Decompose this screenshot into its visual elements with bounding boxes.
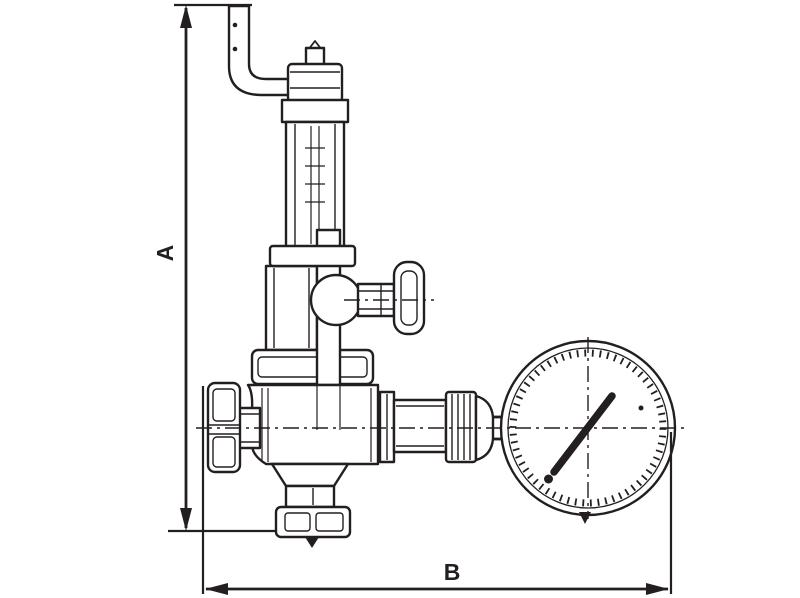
dim-a-arrow-top (180, 5, 192, 28)
bottom-cap-nut (276, 507, 350, 537)
outlet-assembly (380, 392, 504, 462)
pipe-mark-dot (233, 47, 238, 52)
hex-flange (252, 350, 373, 384)
inlet-elbow-pipe (229, 6, 292, 95)
bottom-funnel (272, 464, 348, 486)
gauge-bottom-pointer (579, 512, 591, 524)
side-handwheel-valve (358, 262, 424, 334)
dim-b-arrow-left (205, 583, 228, 595)
spring-bonnet-assembly (282, 41, 348, 248)
elbow-pipe-outline (229, 6, 292, 95)
outlet-spool (394, 400, 446, 452)
dial-dot (639, 406, 644, 411)
dim-b-arrow-right (646, 583, 669, 595)
lock-collar (270, 246, 355, 266)
dim-b-label: B (444, 559, 461, 585)
dim-a-label: A (152, 245, 178, 262)
drain-tip (305, 537, 319, 548)
dim-a-arrow-bottom (180, 508, 192, 531)
handwheel (394, 262, 424, 334)
needle-counterweight (544, 475, 553, 484)
valve-technical-drawing: A B (0, 0, 800, 598)
bottom-neck (286, 486, 334, 507)
drawing-canvas: A B (0, 0, 800, 598)
valve-body-group (248, 385, 378, 464)
bonnet-top-fitting (288, 64, 342, 102)
upper-body-assembly (252, 230, 373, 385)
pipe-mark-dot (233, 23, 238, 28)
outlet-union-nut (446, 392, 476, 462)
bonnet-hex-nut (282, 100, 348, 122)
bottom-outlet-assembly (272, 464, 350, 548)
